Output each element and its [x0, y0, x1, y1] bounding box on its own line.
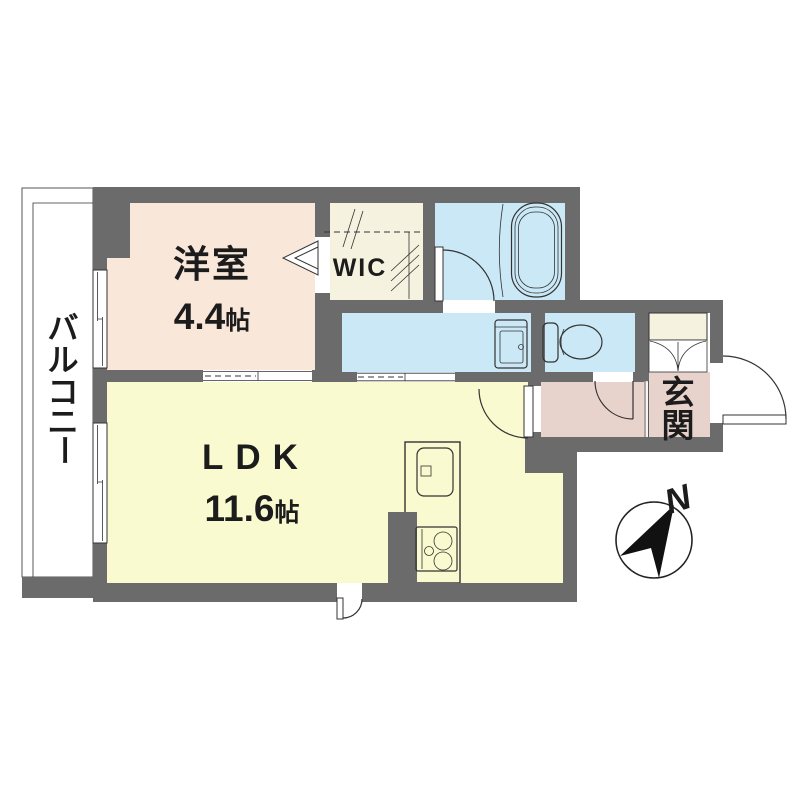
entrance-step-line [644, 381, 649, 437]
washroom-ldk-sliding-door [357, 372, 455, 382]
balcony-label: バ ル コ ニ ー [46, 311, 81, 466]
entrance-door [710, 356, 786, 424]
svg-text:ー: ー [46, 435, 81, 466]
floor-plan-page: N 洋室 4.4帖 WIC LDK 11.6帖 玄 関 バ ル コ ニ ー [0, 0, 800, 800]
ldk-floor [107, 382, 528, 583]
svg-text:玄: 玄 [662, 374, 695, 411]
bedroom-ldk-sliding-door [203, 370, 312, 382]
entrance-label: 玄 関 [662, 374, 695, 444]
kitchen-duct-column [388, 512, 417, 583]
compass-icon: N [616, 477, 697, 578]
ldk-service-door [337, 583, 362, 619]
ldk-window [93, 423, 107, 543]
wic-label: WIC [333, 254, 388, 282]
floor-plan: N 洋室 4.4帖 WIC LDK 11.6帖 玄 関 バ ル コ ニ ー [0, 0, 800, 800]
svg-text:ル: ル [48, 343, 79, 378]
bedroom-window [93, 270, 107, 368]
bedroom-floor [107, 203, 315, 370]
ldk-floor-extension [525, 473, 563, 583]
ldk-label: LDK [202, 438, 310, 477]
svg-text:関: 関 [662, 407, 695, 444]
bedroom-label: 洋室 [173, 243, 251, 285]
svg-text:バ: バ [48, 311, 79, 346]
shoe-cabinet [649, 313, 707, 372]
